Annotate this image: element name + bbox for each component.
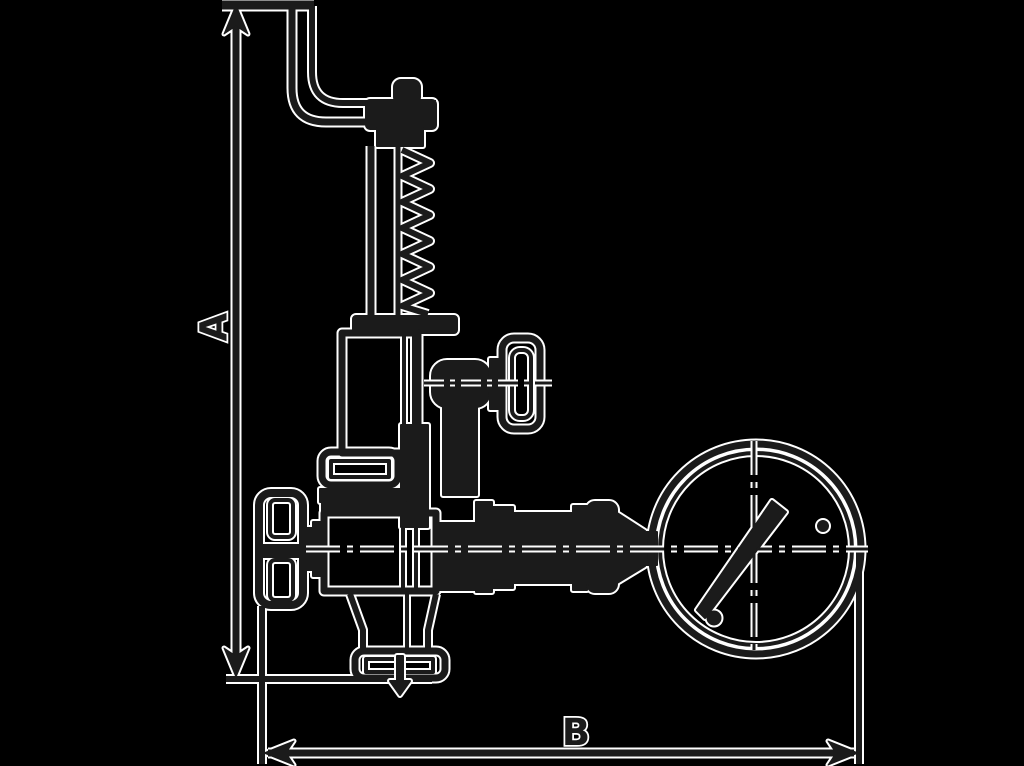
gland-plate xyxy=(320,489,406,502)
lever-cap-block xyxy=(366,100,436,129)
side-test-valve xyxy=(432,338,540,495)
bonnet-neck xyxy=(377,128,423,146)
test-valve-column xyxy=(443,407,477,495)
dim-a-label: A xyxy=(193,312,236,341)
drawing-canvas: A B xyxy=(0,0,1024,766)
gauge-mark-dot-right xyxy=(818,521,829,532)
dim-b-label: B xyxy=(562,711,590,754)
gauge-needle xyxy=(697,501,786,618)
spring-bonnet xyxy=(320,128,457,502)
gauge-mark-dot-left xyxy=(707,611,721,625)
valve-gauge-technical-drawing: A B xyxy=(0,0,1024,766)
inlet-handwheel-hub xyxy=(260,545,302,557)
outlet-chamber xyxy=(437,523,477,590)
